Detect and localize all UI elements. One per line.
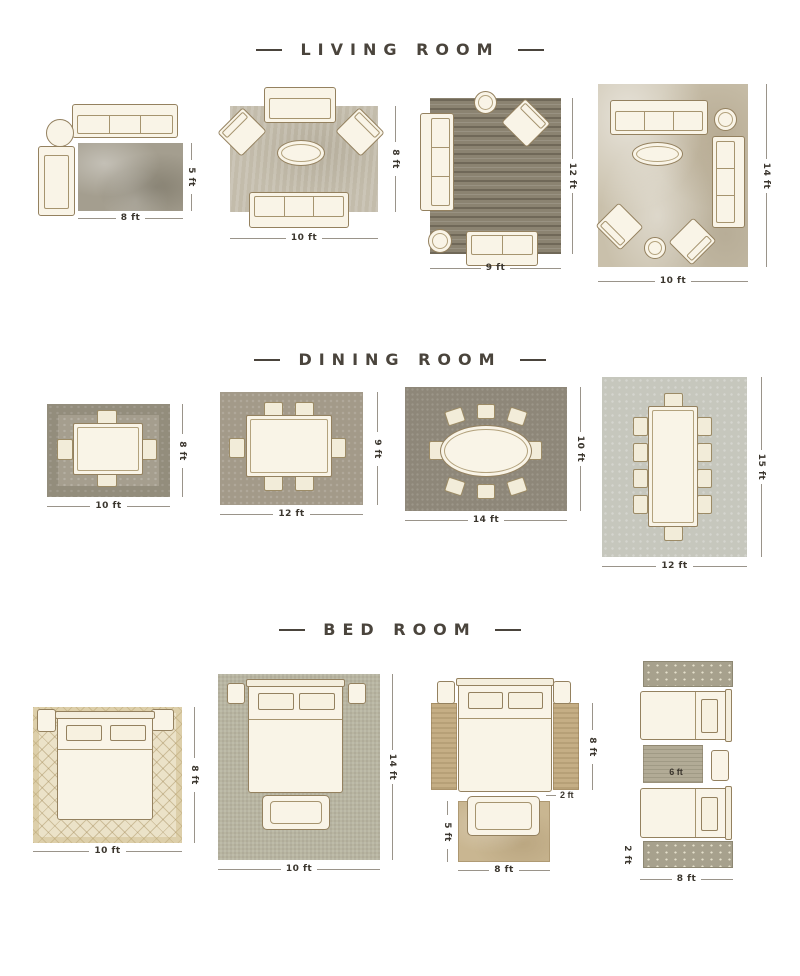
side-table	[474, 91, 497, 114]
dim-line	[392, 674, 393, 750]
dim-line	[510, 268, 561, 269]
dimension-label: 2 ft	[621, 843, 633, 866]
dining-table	[246, 415, 332, 477]
dimension-label: 14 ft	[760, 163, 772, 189]
dim-line	[766, 84, 767, 159]
dim-line	[127, 506, 170, 507]
dim-line	[218, 869, 281, 870]
runner-rug	[643, 661, 733, 687]
dining-chair	[633, 469, 648, 488]
dim-line	[640, 879, 672, 880]
dining-table	[73, 423, 143, 475]
width-dimension: 10 ft	[598, 276, 748, 286]
dim-line	[691, 281, 748, 282]
sofa-seat	[471, 235, 533, 255]
dim-line	[191, 143, 192, 160]
title-dash	[254, 359, 280, 361]
dining-table	[648, 406, 698, 527]
dim-line	[458, 870, 489, 871]
armchair-back	[221, 111, 248, 138]
dimension-label: 8 ft	[494, 865, 514, 875]
cushion-divider	[432, 147, 449, 148]
dining-chair	[633, 495, 648, 514]
dimension-label: 8 ft	[389, 146, 401, 172]
dimension-label: 12 ft	[566, 163, 578, 189]
title-dash	[279, 629, 305, 631]
width-dimension: 10 ft	[47, 501, 170, 511]
section-title-text: BED ROOM	[323, 620, 476, 639]
dimension-label: 8 ft	[188, 762, 200, 788]
dining-chair	[57, 439, 73, 460]
dim-line	[182, 468, 183, 498]
dining-chair	[664, 526, 683, 541]
dim-line	[194, 792, 195, 843]
dim-line	[182, 404, 183, 434]
pillow	[299, 693, 335, 710]
headboard	[246, 679, 345, 687]
dimension-label: 10 ft	[660, 276, 686, 286]
bed-height-dimension: 8 ft	[586, 703, 598, 790]
dim-line	[519, 870, 550, 871]
height-dimension: 8 ft	[188, 707, 200, 843]
cushion-divider	[313, 197, 314, 216]
dimension-label: 8 ft	[176, 438, 188, 464]
section-title-living: LIVING ROOM	[0, 40, 800, 59]
dimension-label: 14 ft	[473, 515, 499, 525]
sofa-seat	[77, 115, 173, 134]
dim-line	[145, 218, 183, 219]
dining-chair	[697, 443, 712, 462]
sofa-seat	[254, 196, 344, 217]
width-dimension: 14 ft	[405, 515, 567, 525]
runner-height-dimension: 2 ft	[621, 839, 633, 870]
cushion-divider	[109, 116, 110, 133]
section-title-bedroom: BED ROOM	[0, 620, 800, 639]
title-dash	[495, 629, 521, 631]
dim-line	[504, 520, 567, 521]
blanket-fold	[459, 718, 551, 719]
bench-rug-height-dimension: 5 ft	[441, 801, 453, 862]
width-dimension: 10 ft	[230, 233, 378, 243]
section-title-text: LIVING ROOM	[300, 40, 499, 59]
dim-line	[447, 801, 448, 815]
section-title-text: DINING ROOM	[298, 350, 501, 369]
armchair	[38, 146, 75, 216]
dim-line	[47, 506, 90, 507]
dim-line	[322, 238, 378, 239]
title-dash	[520, 359, 546, 361]
dimension-label: 10 ft	[95, 501, 121, 511]
headboard	[725, 786, 732, 840]
height-dimension: 9 ft	[371, 392, 383, 505]
pillow	[110, 725, 146, 741]
section-title-dining: DINING ROOM	[0, 350, 800, 369]
sofa	[249, 192, 349, 228]
side-table	[428, 229, 452, 253]
twin-bed	[640, 788, 731, 838]
dining-chair	[141, 439, 157, 460]
headboard	[456, 678, 554, 686]
nightstand	[37, 709, 56, 732]
living-rug-8x5	[78, 143, 183, 211]
dim-line	[377, 392, 378, 432]
bed	[57, 712, 153, 820]
dining-chair	[330, 438, 346, 458]
dim-line	[572, 98, 573, 159]
bench	[467, 796, 540, 836]
dimension-label: 14 ft	[386, 754, 398, 780]
loveseat	[466, 231, 538, 266]
nightstand	[348, 683, 366, 704]
runner-rug	[431, 703, 457, 790]
dim-line	[430, 268, 481, 269]
cushion-divider	[673, 112, 674, 130]
dimension-label: 8 ft	[677, 874, 697, 884]
dim-line	[191, 194, 192, 211]
dimension-label: 9 ft	[486, 263, 506, 273]
blanket-fold	[58, 749, 152, 750]
side-table	[714, 108, 737, 131]
dim-line	[701, 879, 733, 880]
runner-width-dimension: 2 ft	[546, 790, 574, 800]
width-dimension: 12 ft	[602, 561, 747, 571]
dim-line	[447, 849, 448, 863]
dining-chair	[697, 495, 712, 514]
dim-line	[580, 387, 581, 432]
runner-rug	[643, 841, 733, 868]
dining-chair	[477, 404, 495, 419]
dimension-label: 5 ft	[185, 164, 197, 190]
dining-chair	[477, 484, 495, 499]
cushion-divider	[502, 236, 503, 254]
dimension-label: 10 ft	[291, 233, 317, 243]
sofa	[420, 113, 454, 211]
dining-chair	[295, 475, 314, 491]
dim-line	[395, 106, 396, 142]
rug-size-guide-canvas: LIVING ROOM 5 ft 8 ft 8 ft 10 ft 12 ft 9…	[0, 0, 800, 976]
dim-line	[310, 514, 363, 515]
blanket-fold	[249, 719, 342, 720]
dining-chair	[633, 417, 648, 436]
width-dimension: 10 ft	[218, 864, 380, 874]
blanket-fold	[695, 789, 696, 837]
dim-line	[761, 377, 762, 450]
dim-line	[580, 466, 581, 511]
dim-line	[592, 703, 593, 730]
dining-chair	[264, 475, 283, 491]
height-dimension: 8 ft	[176, 404, 188, 497]
dim-line	[592, 764, 593, 791]
width-dimension: 8 ft	[78, 213, 183, 223]
pillow	[258, 693, 294, 710]
dim-line	[395, 176, 396, 212]
dim-line	[126, 851, 182, 852]
dim-line	[693, 566, 747, 567]
sofa	[72, 104, 178, 138]
pillow	[468, 692, 503, 709]
width-dimension: 8 ft	[640, 874, 733, 884]
dim-line	[546, 795, 556, 796]
dining-chair	[633, 443, 648, 462]
width-dimension: 12 ft	[220, 509, 363, 519]
armchair-back	[46, 119, 74, 147]
bench	[262, 795, 330, 830]
dim-line	[377, 466, 378, 506]
dim-line	[602, 566, 656, 567]
width-dimension: 9 ft	[430, 263, 561, 273]
dining-chair	[697, 417, 712, 436]
dimension-label: 6 ft	[656, 767, 696, 777]
blanket-fold	[695, 692, 696, 739]
dimension-label: 15 ft	[755, 454, 767, 480]
title-dash	[518, 49, 544, 51]
coffee-table	[277, 140, 325, 166]
dining-chair	[697, 469, 712, 488]
cushion-divider	[644, 112, 645, 130]
pillow	[508, 692, 543, 709]
dim-line	[33, 851, 89, 852]
dimension-label: 8 ft	[121, 213, 141, 223]
dim-line	[194, 707, 195, 758]
dim-line	[572, 193, 573, 254]
dim-line	[405, 520, 468, 521]
between-beds-rug	[643, 745, 703, 783]
dimension-label: 8 ft	[586, 734, 598, 760]
cushion-divider	[432, 176, 449, 177]
dimension-label: 10 ft	[286, 864, 312, 874]
dim-line	[598, 281, 655, 282]
dining-chair	[229, 438, 245, 458]
nightstand	[711, 750, 729, 781]
width-dimension: 10 ft	[33, 846, 182, 856]
armchair-seat	[44, 155, 69, 209]
dim-line	[220, 514, 273, 515]
sofa	[264, 87, 336, 123]
pillow	[66, 725, 102, 741]
dim-line	[392, 784, 393, 860]
dim-line	[317, 869, 380, 870]
side-table	[644, 237, 666, 259]
cushion-divider	[717, 195, 734, 196]
sofa-seat	[269, 98, 331, 119]
dimension-label: 5 ft	[441, 819, 453, 845]
dim-line	[761, 484, 762, 557]
pillow	[701, 797, 718, 831]
nightstand	[437, 681, 455, 704]
height-dimension: 14 ft	[386, 674, 398, 860]
nightstand	[553, 681, 571, 704]
dimension-label: 12 ft	[278, 509, 304, 519]
height-dimension: 12 ft	[566, 98, 578, 254]
cushion-divider	[717, 168, 734, 169]
cushion-divider	[284, 197, 285, 216]
height-dimension: 14 ft	[760, 84, 772, 267]
cushion-divider	[140, 116, 141, 133]
bed	[458, 679, 552, 792]
title-dash	[256, 49, 282, 51]
height-dimension: 8 ft	[389, 106, 401, 212]
runner-rug	[553, 703, 579, 790]
sofa-seat	[716, 141, 735, 223]
dim-line	[766, 193, 767, 268]
nightstand	[227, 683, 245, 704]
dining-table-oval	[440, 425, 532, 477]
sofa-seat	[431, 118, 450, 206]
dimension-label: 9 ft	[371, 436, 383, 462]
height-dimension: 15 ft	[755, 377, 767, 557]
dim-line	[78, 218, 116, 219]
sofa-seat	[615, 111, 703, 131]
dimension-label: 10 ft	[574, 436, 586, 462]
sofa	[712, 136, 745, 228]
dimension-label: 10 ft	[94, 846, 120, 856]
dimension-label: 12 ft	[661, 561, 687, 571]
bench-rug-width-dimension: 8 ft	[458, 865, 550, 875]
sofa	[610, 100, 708, 135]
twin-bed	[640, 691, 731, 740]
dimension-label: 2 ft	[560, 790, 574, 800]
headboard	[55, 711, 155, 719]
height-dimension: 10 ft	[574, 387, 586, 511]
coffee-table	[632, 142, 683, 166]
pillow	[701, 699, 718, 733]
dim-line	[230, 238, 286, 239]
headboard	[725, 689, 732, 742]
height-dimension: 5 ft	[185, 143, 197, 211]
bed	[248, 680, 343, 793]
